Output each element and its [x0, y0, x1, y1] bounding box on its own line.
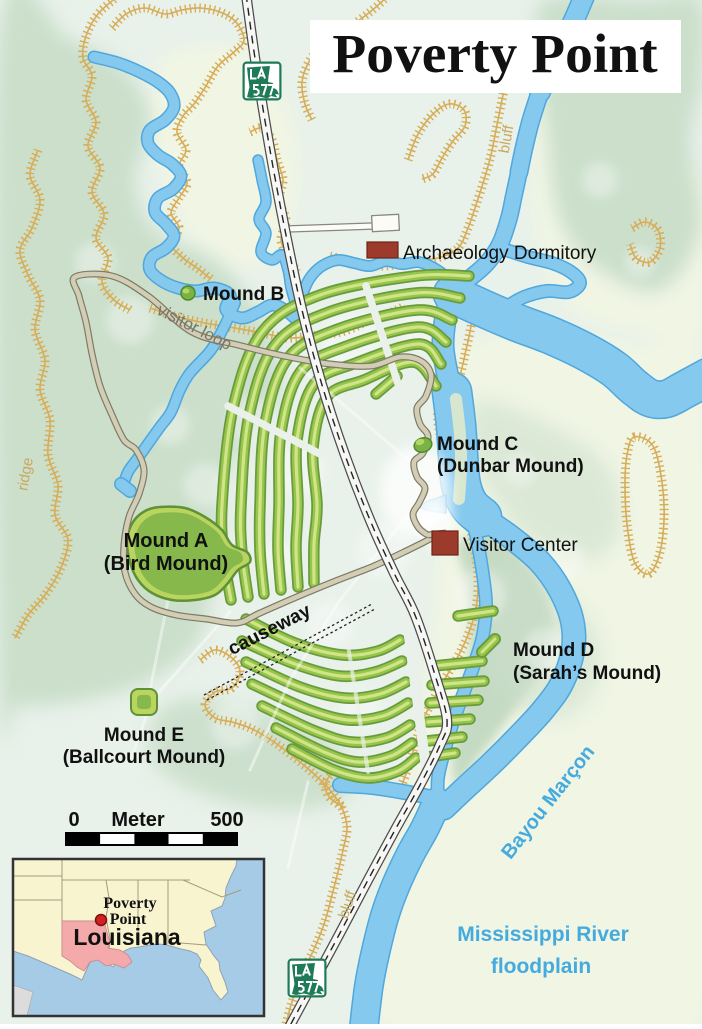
svg-text:Meter: Meter: [111, 809, 165, 831]
svg-text:Archaeology Dormitory: Archaeology Dormitory: [403, 243, 597, 264]
svg-text:(Bird Mound): (Bird Mound): [104, 553, 228, 575]
svg-text:floodplain: floodplain: [491, 955, 591, 978]
svg-text:Visitor Center: Visitor Center: [463, 535, 578, 556]
svg-text:Mound C: Mound C: [437, 434, 519, 455]
svg-text:Poverty Point: Poverty Point: [332, 24, 658, 85]
svg-text:(Ballcourt Mound): (Ballcourt Mound): [63, 747, 226, 768]
svg-text:500: 500: [210, 809, 243, 831]
svg-text:0: 0: [68, 809, 79, 831]
svg-text:(Dunbar Mound): (Dunbar Mound): [437, 456, 584, 477]
svg-text:Mississippi River: Mississippi River: [457, 923, 629, 946]
svg-text:Mound A: Mound A: [124, 530, 209, 552]
svg-text:Mound D: Mound D: [513, 640, 594, 661]
svg-text:Mound B: Mound B: [203, 284, 284, 305]
svg-text:Mound E: Mound E: [104, 725, 184, 746]
svg-text:Louisiana: Louisiana: [73, 924, 181, 950]
svg-text:Poverty: Poverty: [103, 895, 156, 912]
svg-text:(Sarah’s Mound): (Sarah’s Mound): [513, 663, 661, 684]
